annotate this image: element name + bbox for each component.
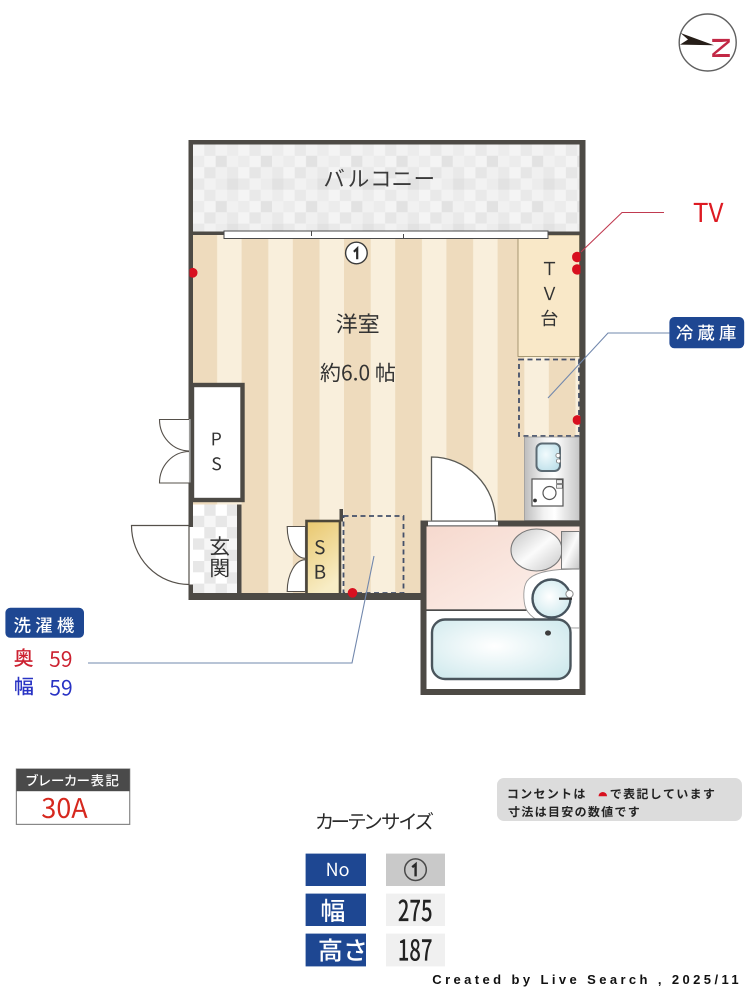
svg-text:Created by Live Search , 2025/: Created by Live Search , 2025/11	[432, 972, 742, 987]
